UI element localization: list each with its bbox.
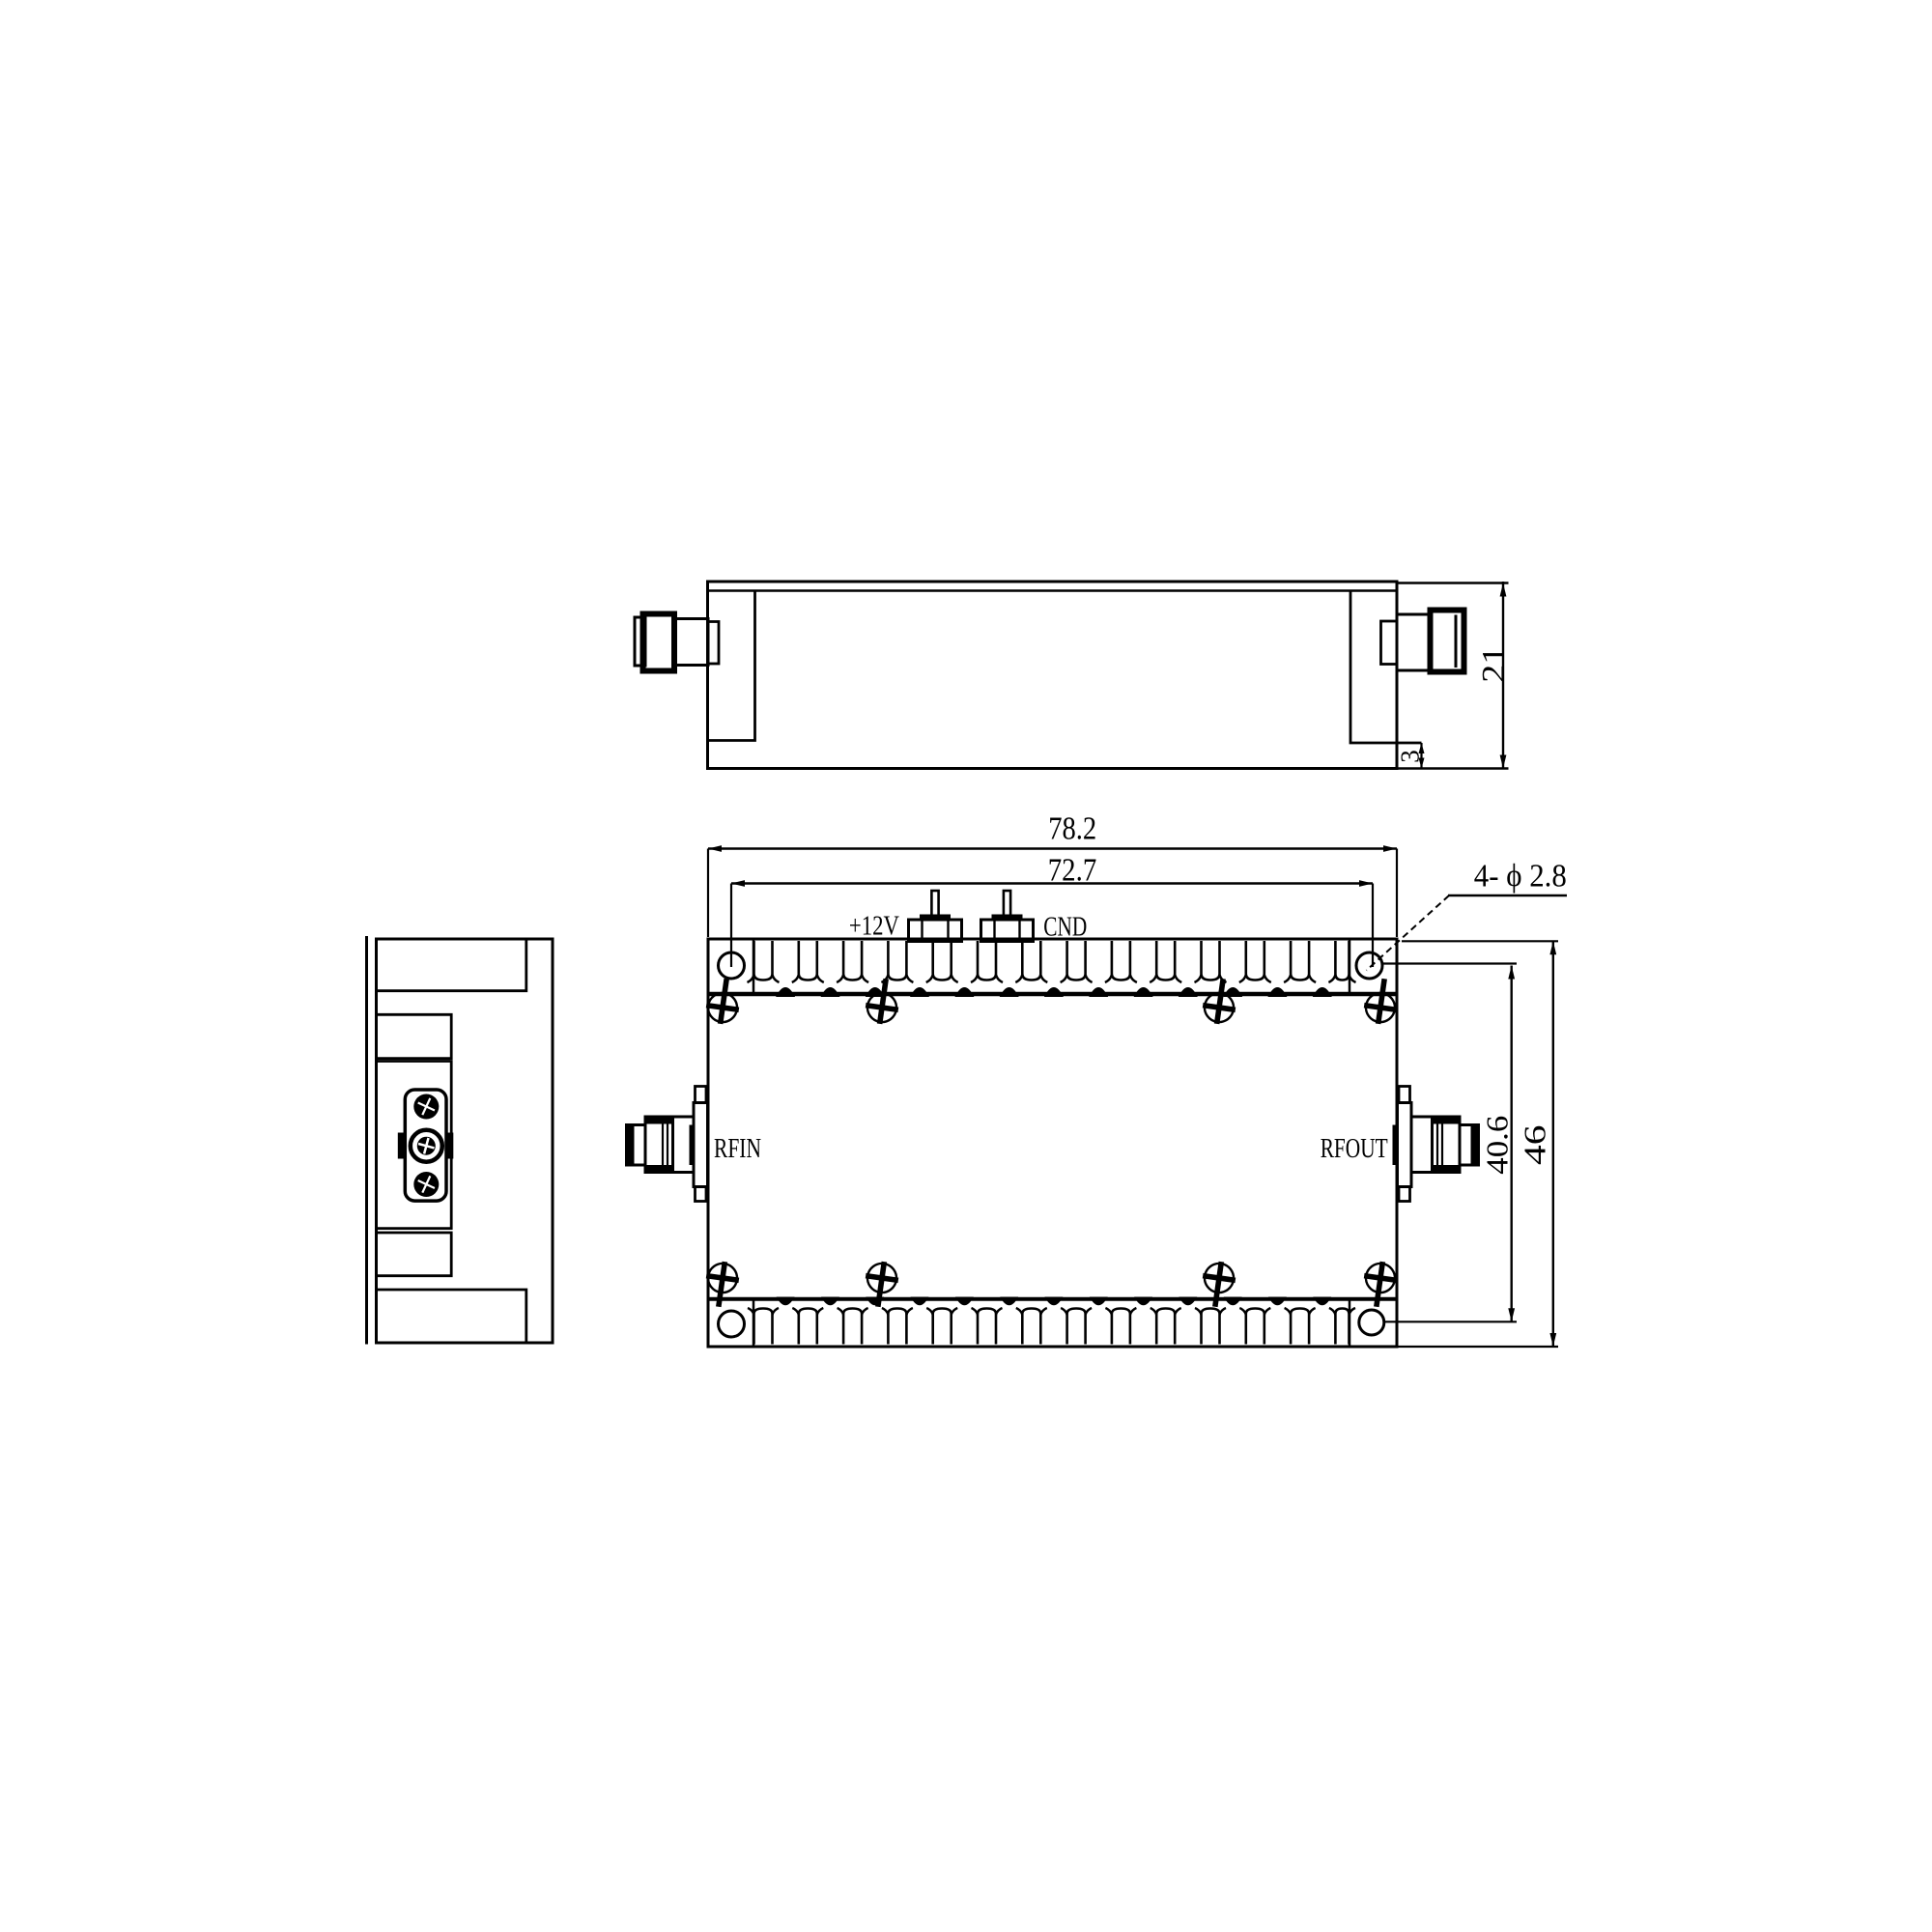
svg-text:RFIN: RFIN bbox=[714, 1134, 761, 1164]
svg-text:+12V: +12V bbox=[849, 912, 899, 942]
svg-text:CND: CND bbox=[1043, 913, 1087, 943]
svg-text:3: 3 bbox=[1396, 750, 1425, 763]
svg-text:40.6: 40.6 bbox=[1480, 1116, 1515, 1175]
svg-text:21: 21 bbox=[1476, 646, 1512, 683]
svg-text:78.2: 78.2 bbox=[1048, 811, 1096, 847]
svg-text:72.7: 72.7 bbox=[1048, 853, 1097, 889]
svg-text:4- ϕ 2.8: 4- ϕ 2.8 bbox=[1474, 859, 1567, 895]
svg-text:RFOUT: RFOUT bbox=[1321, 1134, 1388, 1164]
svg-text:46: 46 bbox=[1518, 1124, 1552, 1165]
